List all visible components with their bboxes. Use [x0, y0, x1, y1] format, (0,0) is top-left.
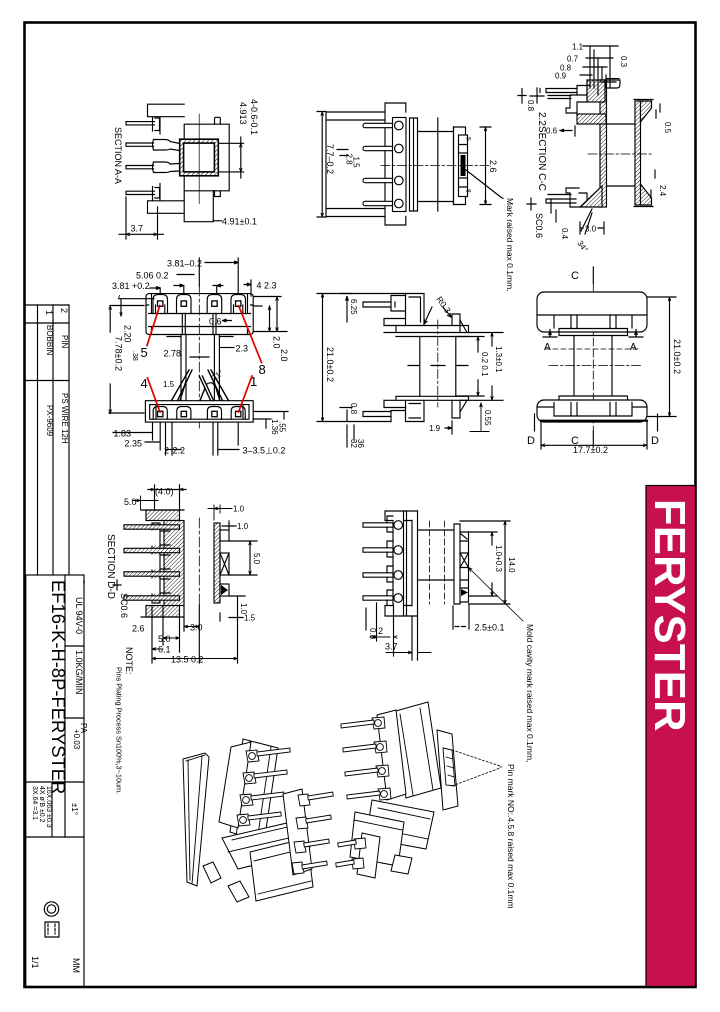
- svg-text:8: 8: [259, 362, 266, 377]
- svg-text:SC0.6: SC0.6: [119, 593, 129, 618]
- svg-text:SECTION A-A: SECTION A-A: [113, 127, 123, 184]
- svg-text:13.5 0.2: 13.5 0.2: [171, 655, 204, 665]
- svg-text:1.3±0.1: 1.3±0.1: [494, 346, 503, 373]
- svg-text:2.6: 2.6: [132, 624, 145, 634]
- svg-text:5.0: 5.0: [158, 634, 171, 644]
- svg-text:7.7–0.2: 7.7–0.2: [325, 144, 335, 174]
- svg-text:3.7: 3.7: [385, 642, 398, 652]
- svg-text:1/1: 1/1: [30, 956, 40, 969]
- svg-text:14.0: 14.0: [507, 557, 516, 573]
- svg-text:3.7: 3.7: [131, 224, 144, 234]
- svg-text:2.0: 2.0: [279, 349, 289, 362]
- svg-text:1.83: 1.83: [114, 429, 132, 439]
- svg-text:2: 2: [378, 626, 383, 636]
- svg-text:1.0KG/MIN: 1.0KG/MIN: [74, 650, 84, 695]
- svg-text:4 2.3: 4 2.3: [257, 281, 277, 291]
- svg-text:0.8: 0.8: [526, 100, 535, 112]
- svg-text:SC0.6: SC0.6: [534, 213, 544, 238]
- svg-text:1.9: 1.9: [429, 424, 441, 433]
- svg-text:EF16-K-H-8P-FERYSTER: EF16-K-H-8P-FERYSTER: [48, 580, 69, 794]
- svg-text:2.6: 2.6: [488, 160, 498, 173]
- svg-text:Pins Plating Process Sn100%,3~: Pins Plating Process Sn100%,3~10um.: [115, 667, 124, 794]
- svg-text:A: A: [630, 342, 637, 353]
- svg-text:2.0: 2.0: [272, 336, 282, 349]
- svg-text:4X ø’B ±0.2: 4X ø’B ±0.2: [38, 786, 45, 823]
- svg-text:0.55: 0.55: [483, 410, 492, 426]
- svg-text:FERYSTER: FERYSTER: [645, 499, 693, 732]
- svg-text:2: 2: [164, 446, 169, 456]
- svg-text:2.3: 2.3: [236, 344, 249, 354]
- svg-text:1.5: 1.5: [163, 380, 175, 389]
- svg-text:8: 8: [465, 189, 472, 193]
- svg-text:16X.063 ±0.3: 16X.063 ±0.3: [45, 786, 52, 828]
- svg-text:1.0: 1.0: [233, 505, 245, 514]
- svg-text:0.8: 0.8: [368, 628, 377, 640]
- svg-text:2.2: 2.2: [173, 446, 186, 456]
- svg-text:5.06 0.2: 5.06 0.2: [136, 271, 169, 281]
- svg-text:17.7±0.2: 17.7±0.2: [573, 445, 608, 455]
- svg-text:Mark raised max 0.1mm.: Mark raised max 0.1mm.: [505, 198, 515, 292]
- svg-text:1.0+0.3: 1.0+0.3: [494, 545, 503, 572]
- svg-text:PX-9609: PX-9609: [45, 405, 54, 437]
- svg-text:D: D: [527, 435, 535, 447]
- svg-text:2.78: 2.78: [164, 349, 182, 359]
- svg-text:Pin mark NO:.4.5.8 raised max: Pin mark NO:.4.5.8 raised max 0.1mm: [506, 764, 516, 909]
- svg-text:2.2SECTION C-C: 2.2SECTION C-C: [536, 112, 547, 191]
- svg-text:0.6: 0.6: [209, 317, 222, 327]
- svg-text:3.81–0.2: 3.81–0.2: [167, 259, 202, 269]
- svg-text:PS WIRE 12H: PS WIRE 12H: [60, 393, 69, 444]
- svg-text:C: C: [571, 270, 579, 282]
- svg-text:7.78±0.2: 7.78±0.2: [114, 336, 124, 371]
- svg-text:5: 5: [465, 137, 472, 141]
- svg-text:1.5: 1.5: [352, 157, 361, 169]
- svg-text:SECTION D-D: SECTION D-D: [105, 534, 116, 599]
- svg-text:2.35: 2.35: [125, 439, 143, 449]
- svg-text:0.4: 0.4: [560, 228, 569, 240]
- svg-text:0.2 0.1: 0.2 0.1: [480, 352, 489, 377]
- svg-text:2.4: 2.4: [658, 185, 667, 197]
- svg-text:”: ”: [77, 581, 86, 584]
- svg-text:21.0±0.2: 21.0±0.2: [672, 339, 682, 374]
- svg-text:0.9: 0.9: [555, 72, 567, 81]
- svg-text:36: 36: [356, 439, 365, 448]
- svg-text:NOTE:: NOTE:: [124, 647, 134, 675]
- svg-text:1: 1: [44, 310, 54, 315]
- svg-text:0.8: 0.8: [349, 403, 358, 415]
- svg-text:D: D: [651, 435, 659, 447]
- svg-text:.55: .55: [278, 421, 287, 433]
- svg-text:0.5: 0.5: [663, 122, 672, 134]
- svg-text:0.6: 0.6: [546, 127, 558, 136]
- svg-text:1.1: 1.1: [572, 43, 584, 52]
- svg-text:0.7: 0.7: [567, 55, 579, 64]
- svg-text:3.0: 3.0: [585, 225, 597, 234]
- svg-text:6.1: 6.1: [158, 645, 171, 655]
- svg-text:1.0: 1.0: [237, 522, 249, 531]
- svg-text:3–3.5⊥0.2: 3–3.5⊥0.2: [243, 446, 286, 456]
- svg-text:PIN: PIN: [60, 335, 69, 349]
- svg-text:21.0±0.2: 21.0±0.2: [325, 347, 335, 382]
- svg-text:UL 94V-0: UL 94V-0: [74, 597, 84, 634]
- svg-text:4.913: 4.913: [238, 102, 248, 125]
- svg-text:+0.03: +0.03: [72, 729, 81, 750]
- svg-text:4-0.6-0.1: 4-0.6-0.1: [249, 99, 259, 135]
- svg-text:2.5±0.1: 2.5±0.1: [475, 623, 505, 633]
- svg-text:0.3: 0.3: [619, 56, 628, 68]
- svg-text:1.5: 1.5: [244, 614, 256, 623]
- svg-text:4: 4: [141, 376, 148, 391]
- svg-text:4.91±0.1: 4.91±0.1: [222, 216, 257, 226]
- svg-text:6.25: 6.25: [349, 299, 358, 315]
- svg-text:Mold cavity mark raised max 0.: Mold cavity mark raised max 0.1mm,: [525, 624, 535, 762]
- svg-text:5.0: 5.0: [124, 497, 137, 507]
- svg-text:3.81 +0.2: 3.81 +0.2: [112, 281, 150, 291]
- svg-text:BOBBIN: BOBBIN: [45, 325, 54, 355]
- svg-text:(4.0): (4.0): [155, 487, 174, 497]
- svg-text:5.0: 5.0: [252, 553, 261, 565]
- svg-text:3X.64 =3.1: 3X.64 =3.1: [31, 786, 38, 820]
- svg-text:±1°: ±1°: [70, 803, 79, 815]
- svg-text:.38: .38: [131, 351, 138, 361]
- svg-text:3.0: 3.0: [190, 623, 203, 633]
- svg-text:MM: MM: [71, 958, 81, 973]
- svg-text:A: A: [544, 342, 551, 353]
- svg-text:5: 5: [141, 345, 148, 360]
- svg-text:2: 2: [59, 308, 69, 313]
